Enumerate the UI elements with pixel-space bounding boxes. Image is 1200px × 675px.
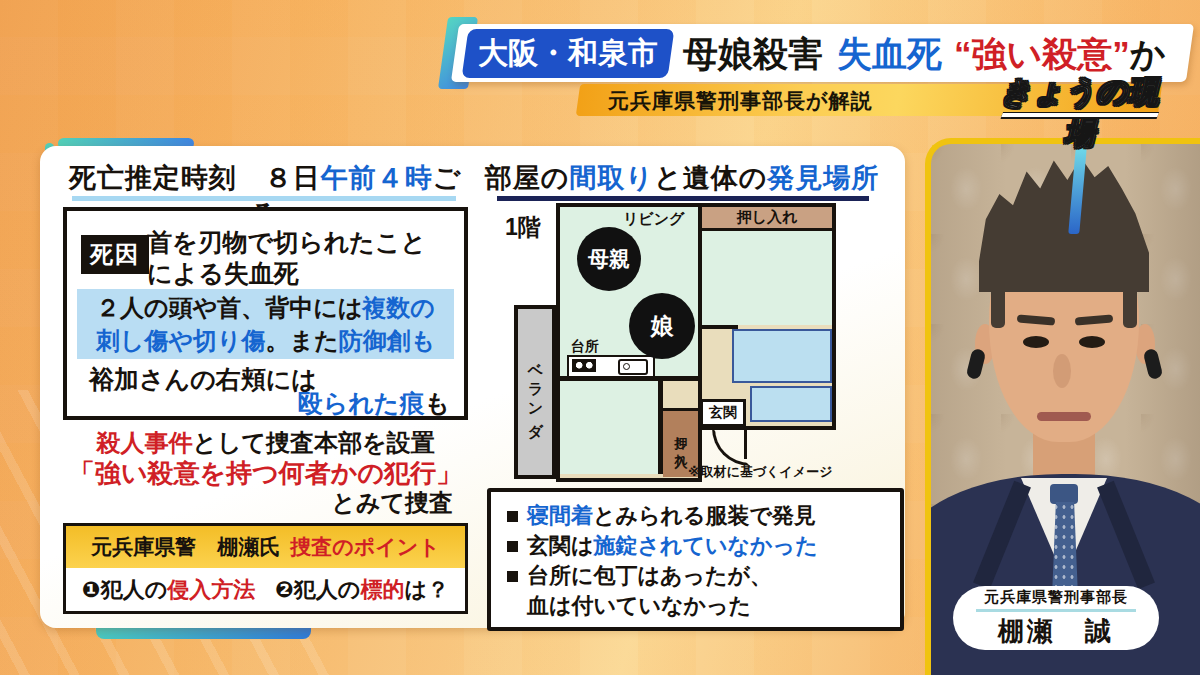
veranda: ベランダ	[514, 305, 556, 479]
point2-red: 標的	[360, 575, 404, 605]
death-time-label: 死亡推定時刻 ８日	[69, 163, 321, 193]
wounds-line1: ２人の頭や首、背中には複数の	[96, 291, 435, 324]
entrance-door-arc	[712, 428, 750, 466]
futon-upper	[732, 329, 832, 383]
daughter-body-marker: 娘	[629, 293, 695, 359]
subtitle-text: 元兵庫県警刑事部長が解説	[608, 87, 873, 115]
commentator-eye	[1023, 336, 1049, 348]
tv-broadcast-frame: 大阪・和泉市 母娘殺害 失血死 “強い殺意” か 元兵庫県警刑事部長が解説 きょ…	[0, 0, 1200, 675]
plan-title-black2: と遺体の	[654, 163, 767, 193]
closet-bottom-label: 押し入れ	[672, 427, 690, 461]
commentator-sideburn	[991, 288, 1005, 328]
finding-item: 玄関は施錠されていなかった	[507, 531, 890, 561]
commentator-hair	[979, 152, 1149, 292]
bullet-square-icon	[507, 571, 518, 582]
headline-intent-text: “強い殺意”	[954, 36, 1130, 71]
findings-box: 寝間着とみられる服装で発見 玄関は施錠されていなかった 台所に包丁はあったが、 …	[487, 488, 904, 631]
plan-title-black1: 部屋の	[485, 163, 570, 193]
earphone-icon	[1143, 348, 1164, 380]
mother-body-marker: 母親	[577, 227, 641, 291]
point1-red: 侵入方法	[167, 575, 255, 605]
stove-icon	[572, 359, 596, 372]
investigation-line2: 「強い殺意を持つ何者かの犯行」	[57, 456, 474, 491]
headline-cause-text: 失血死	[837, 36, 942, 71]
tie-knot	[1050, 484, 1078, 504]
finding-item-continued: 血は付いていなかった	[507, 591, 890, 621]
info-card: 死亡推定時刻 ８日午前４時ごろ 死因 首を刃物で切られたこと による失血死 ２人…	[40, 146, 905, 628]
investigation-line3: とみて捜査	[63, 487, 453, 519]
plan-title-blue1: 間取り	[569, 163, 654, 193]
sink-faucet-icon	[623, 363, 630, 370]
points-header-black: 元兵庫県警 棚瀬氏	[91, 533, 280, 561]
futon-lower	[750, 386, 832, 422]
wounds-line2-blue1: 刺し傷や切り傷	[96, 327, 266, 354]
investigation-line1: 殺人事件として捜査本部を設置	[63, 427, 468, 459]
cheek-injury-suffix: も	[424, 389, 450, 417]
floor-plan-note: ※取材に基づくイメージ	[688, 463, 853, 481]
wounds-line1-black: ２人の頭や首、背中には	[96, 294, 362, 321]
location-badge: 大阪・和泉市	[462, 29, 675, 78]
investigation-line1-black: として捜査本部を設置	[192, 429, 434, 456]
earphone-icon	[966, 348, 987, 380]
wounds-line2-blue2: 防御創も	[339, 327, 436, 354]
finding1-text: 寝間着とみられる服装で発見	[527, 501, 816, 531]
entrance-label-box: 玄関	[700, 399, 746, 427]
location-badge-text: 大阪・和泉市	[478, 33, 658, 74]
wounds-line2-black: 。また	[266, 327, 339, 354]
commentator-mouth	[1037, 412, 1091, 421]
finding3-text: 台所に包丁はあったが、	[527, 561, 772, 591]
finding2-black: 玄関は	[527, 533, 594, 558]
wounds-line2: 刺し傷や切り傷。また防御創も	[96, 324, 435, 357]
commentator-name: 棚瀬 誠	[998, 614, 1114, 649]
point2-suffix: は？	[404, 575, 449, 605]
cause-label: 死因	[81, 235, 149, 274]
finding2-text: 玄関は施錠されていなかった	[527, 531, 818, 561]
commentator-video-panel: 元兵庫県警刑事部長 棚瀬 誠	[925, 138, 1200, 675]
points-header-red: 捜査のポイント	[290, 533, 439, 561]
right-room	[702, 231, 832, 325]
finding-item: 台所に包丁はあったが、	[507, 561, 890, 591]
finding1-blue: 寝間着	[527, 503, 593, 528]
finding1-black: とみられる服装で発見	[593, 503, 816, 528]
kitchen-label: 台所	[571, 338, 599, 356]
commentator-eye	[1079, 336, 1105, 348]
commentator-sideburn	[1123, 288, 1137, 328]
wounds-line1-blue: 複数の	[362, 294, 435, 321]
commentator-tie	[1052, 502, 1078, 597]
commentator-nose	[1053, 354, 1071, 388]
cheek-injury-line1: 裕加さんの右頬には	[89, 363, 317, 396]
headline-victim-text: 母娘殺害	[683, 36, 823, 71]
program-logo-underline	[1001, 113, 1158, 117]
finding-item: 寝間着とみられる服装で発見	[507, 501, 890, 531]
point2-black: ❷犯人の	[275, 575, 360, 605]
headline-suffix-text: か	[1130, 36, 1166, 71]
sink-icon	[618, 359, 648, 375]
points-box-body: ❶犯人の侵入方法❷犯人の標的は？	[66, 568, 465, 611]
bullet-square-icon	[507, 511, 518, 522]
cause-text-line2: による失血死	[147, 257, 299, 290]
point1-black: ❶犯人の	[82, 575, 167, 605]
cheek-injury-blue: 殴られた痕	[298, 389, 425, 417]
cause-text-line1: 首を刃物で切られたこと	[147, 226, 426, 259]
bottom-room	[560, 381, 658, 474]
investigation-line1-red: 殺人事件	[96, 429, 192, 456]
finding2-blue: 施錠されていなかった	[594, 533, 818, 558]
cheek-injury-line2: 殴られた痕も	[298, 387, 450, 420]
commentator-title: 元兵庫県警刑事部長	[976, 588, 1136, 612]
investigation-points-box: 元兵庫県警 棚瀬氏 捜査のポイント ❶犯人の侵入方法❷犯人の標的は？	[63, 523, 468, 614]
finding3-blue: 血は付いていなかった	[527, 591, 751, 621]
points-box-header: 元兵庫県警 棚瀬氏 捜査のポイント	[66, 526, 465, 568]
cause-of-death-box: 死因 首を刃物で切られたこと による失血死 ２人の頭や首、背中には複数の 刺し傷…	[63, 207, 468, 420]
living-room-label: リビング	[623, 210, 684, 229]
plan-title-blue2: 発見場所	[767, 163, 879, 193]
floor-plan-diagram: 1階 リビング 押し入れ 台所 押し入れ ベラ	[505, 200, 850, 490]
closet-top: 押し入れ	[702, 207, 832, 231]
bullet-square-icon	[507, 541, 518, 552]
commentator-nameplate: 元兵庫県警刑事部長 棚瀬 誠	[953, 586, 1159, 650]
veranda-label: ベランダ	[526, 352, 545, 432]
death-time-underline	[72, 196, 456, 201]
death-time-value: 午前４時	[321, 163, 433, 193]
floor-plan-title: 部屋の間取りと遺体の発見場所	[482, 160, 882, 196]
wounds-highlight-block: ２人の頭や首、背中には複数の 刺し傷や切り傷。また防御創も	[77, 289, 454, 359]
floor-number-label: 1階	[505, 212, 541, 243]
